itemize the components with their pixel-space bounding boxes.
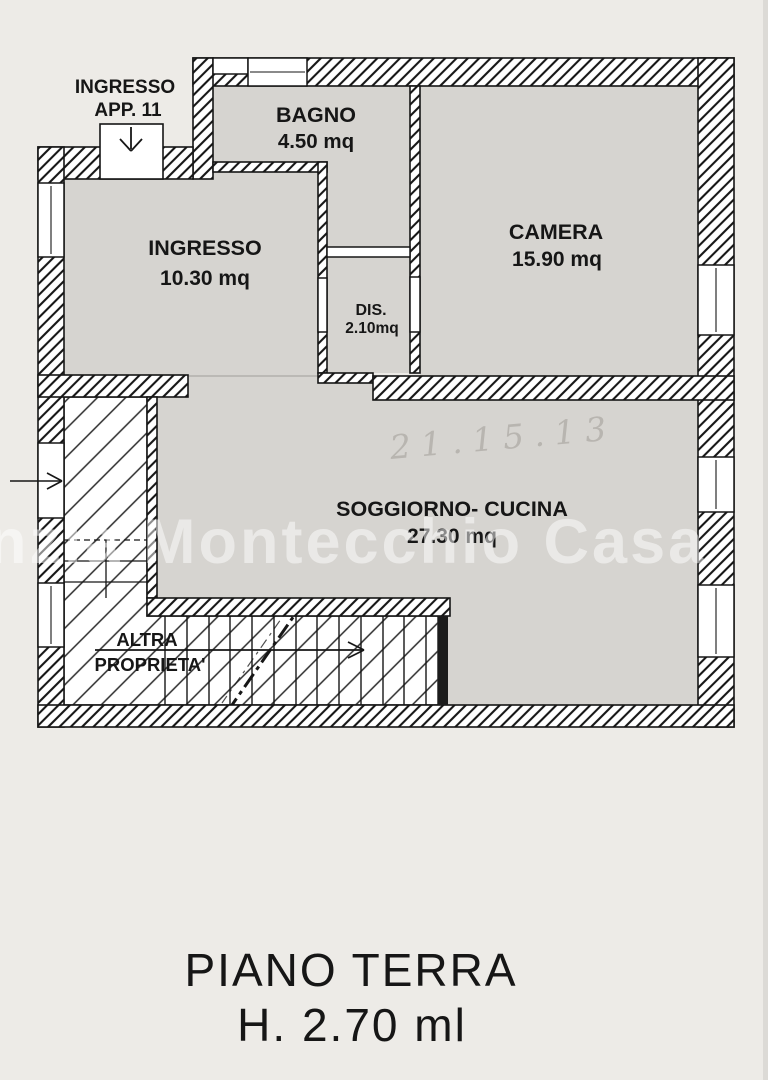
entrance-label-line2: APP. 11 bbox=[94, 100, 162, 121]
room-area-ingresso: 10.30 mq bbox=[160, 267, 250, 290]
wall-top-stub bbox=[193, 58, 213, 179]
entrance-label-line1: INGRESSO bbox=[75, 77, 175, 98]
wall-dis-south bbox=[318, 373, 373, 383]
room-label-dis: DIS. bbox=[355, 302, 386, 319]
wall-stair-north bbox=[147, 598, 450, 616]
room-area-dis: 2.10mq bbox=[345, 320, 398, 337]
room-label-ingresso: INGRESSO bbox=[148, 236, 262, 260]
entrance-door bbox=[100, 124, 163, 179]
scan-edge bbox=[763, 0, 768, 1080]
door-ingresso-dis bbox=[318, 278, 327, 332]
room-label-bagno: BAGNO bbox=[276, 103, 356, 127]
wall-top-inset bbox=[213, 58, 248, 74]
room-area-camera: 15.90 mq bbox=[512, 248, 602, 271]
caption-floor-name: PIANO TERRA bbox=[185, 944, 518, 996]
watermark: Agenzia Montecchio Casa bbox=[0, 507, 706, 577]
wall-soggiorno-north bbox=[373, 376, 734, 400]
door-dis-north bbox=[327, 247, 410, 257]
scanned-floor-plan-page: INGRESSO APP. 11 INGRESSO 10.30 mq BAGNO… bbox=[0, 0, 768, 1080]
wall-bottom bbox=[38, 705, 734, 727]
other-property-label-line1: ALTRA bbox=[116, 629, 177, 650]
other-property-label-line2: PROPRIETA' bbox=[95, 654, 206, 675]
room-label-camera: CAMERA bbox=[509, 220, 603, 244]
wall-dis-west bbox=[318, 162, 327, 373]
room-area-bagno: 4.50 mq bbox=[278, 130, 354, 153]
caption-floor-height: H. 2.70 ml bbox=[237, 999, 467, 1051]
door-dis-camera bbox=[410, 277, 420, 332]
wall-bagno-south bbox=[213, 162, 327, 172]
wall-ingresso-south bbox=[38, 375, 188, 397]
wall-stair-east-lower bbox=[438, 616, 448, 705]
floor-plan-drawing: INGRESSO APP. 11 INGRESSO 10.30 mq BAGNO… bbox=[0, 0, 768, 1080]
